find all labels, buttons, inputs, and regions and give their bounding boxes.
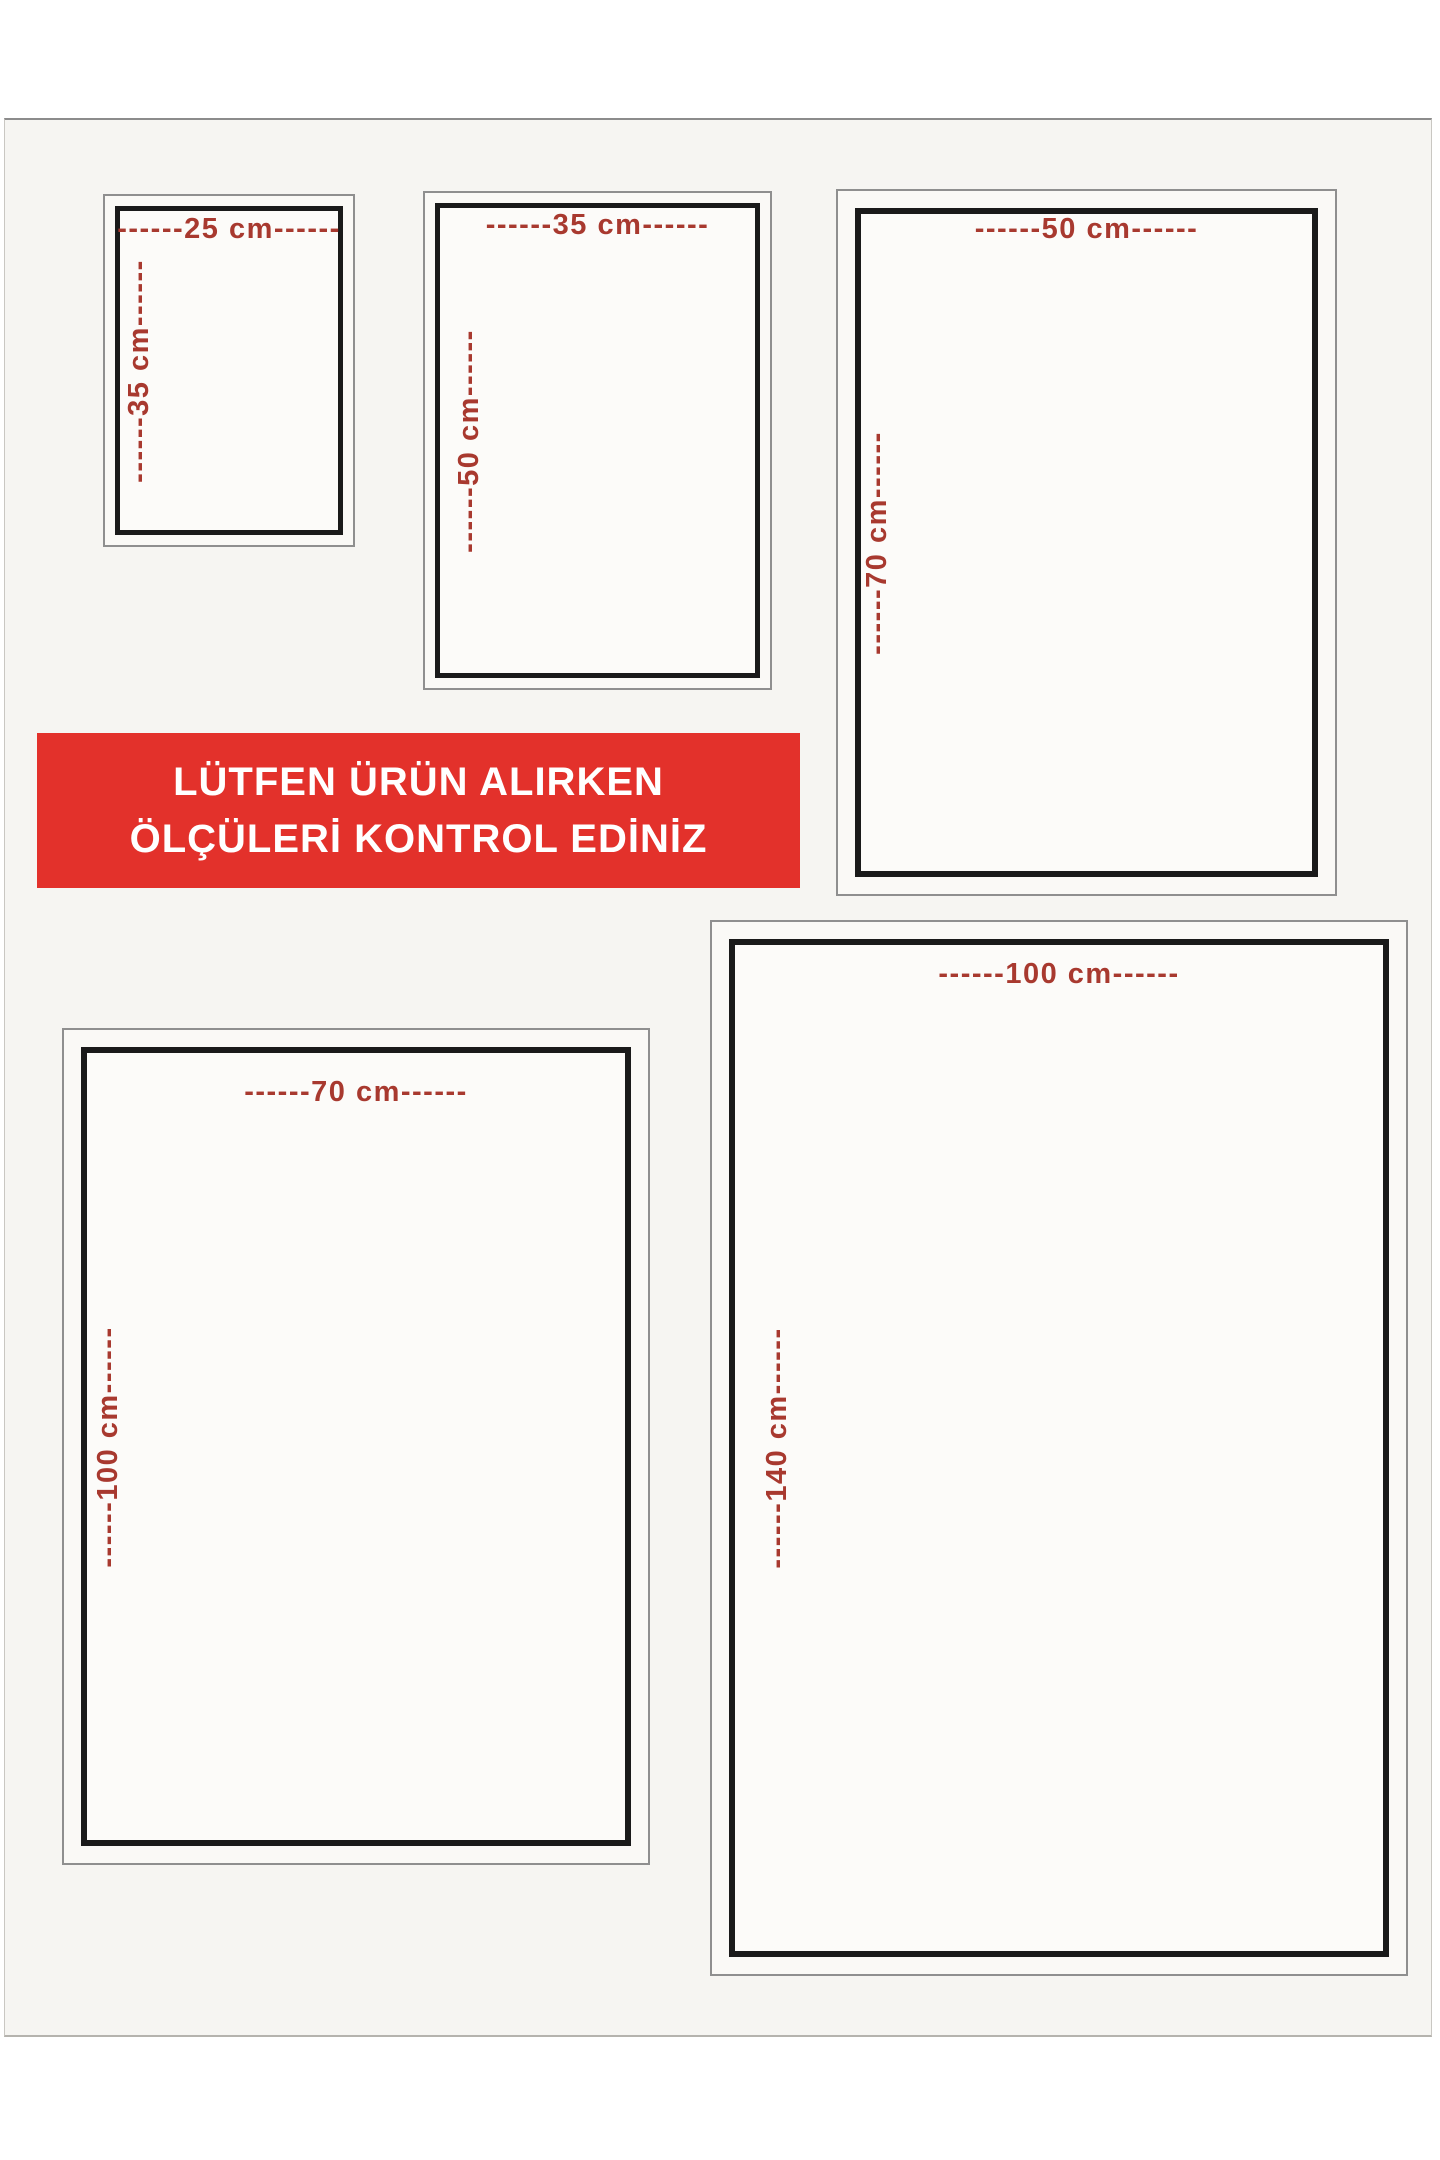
height-label-35cm: ------35 cm------ — [124, 259, 154, 483]
warning-banner-line1: LÜTFEN ÜRÜN ALIRKEN — [37, 754, 800, 811]
width-label-25cm: ------25 cm------ — [105, 214, 353, 244]
size-box-100x140: ------100 cm------ ------140 cm------ — [710, 920, 1408, 1976]
size-box-70x100: ------70 cm------ ------100 cm------ — [62, 1028, 650, 1865]
width-label-35cm: ------35 cm------ — [425, 210, 770, 240]
height-label-70cm: ------70 cm------ — [862, 431, 892, 655]
warning-banner: LÜTFEN ÜRÜN ALIRKEN ÖLÇÜLERİ KONTROL EDİ… — [37, 733, 800, 888]
warning-banner-line2: ÖLÇÜLERİ KONTROL EDİNİZ — [37, 811, 800, 868]
size-box-50x70-frame — [855, 208, 1318, 877]
height-label-50cm: ------50 cm------ — [454, 329, 484, 553]
size-box-35x50: ------35 cm------ ------50 cm------ — [423, 191, 772, 690]
size-box-25x35: ------25 cm------ ------35 cm------ — [103, 194, 355, 547]
size-box-70x100-frame — [81, 1047, 631, 1846]
size-box-50x70: ------50 cm------ ------70 cm------ — [836, 189, 1337, 896]
size-box-100x140-frame — [729, 939, 1389, 1957]
width-label-70cm: ------70 cm------ — [64, 1077, 648, 1107]
width-label-100cm: ------100 cm------ — [712, 959, 1406, 989]
width-label-50cm: ------50 cm------ — [838, 214, 1335, 244]
height-label-140cm: ------140 cm------ — [762, 1327, 792, 1568]
height-label-100cm: ------100 cm------ — [93, 1326, 123, 1567]
size-guide-image: { "banner": { "line1": "LÜTFEN ÜRÜN ALIR… — [0, 0, 1440, 2160]
